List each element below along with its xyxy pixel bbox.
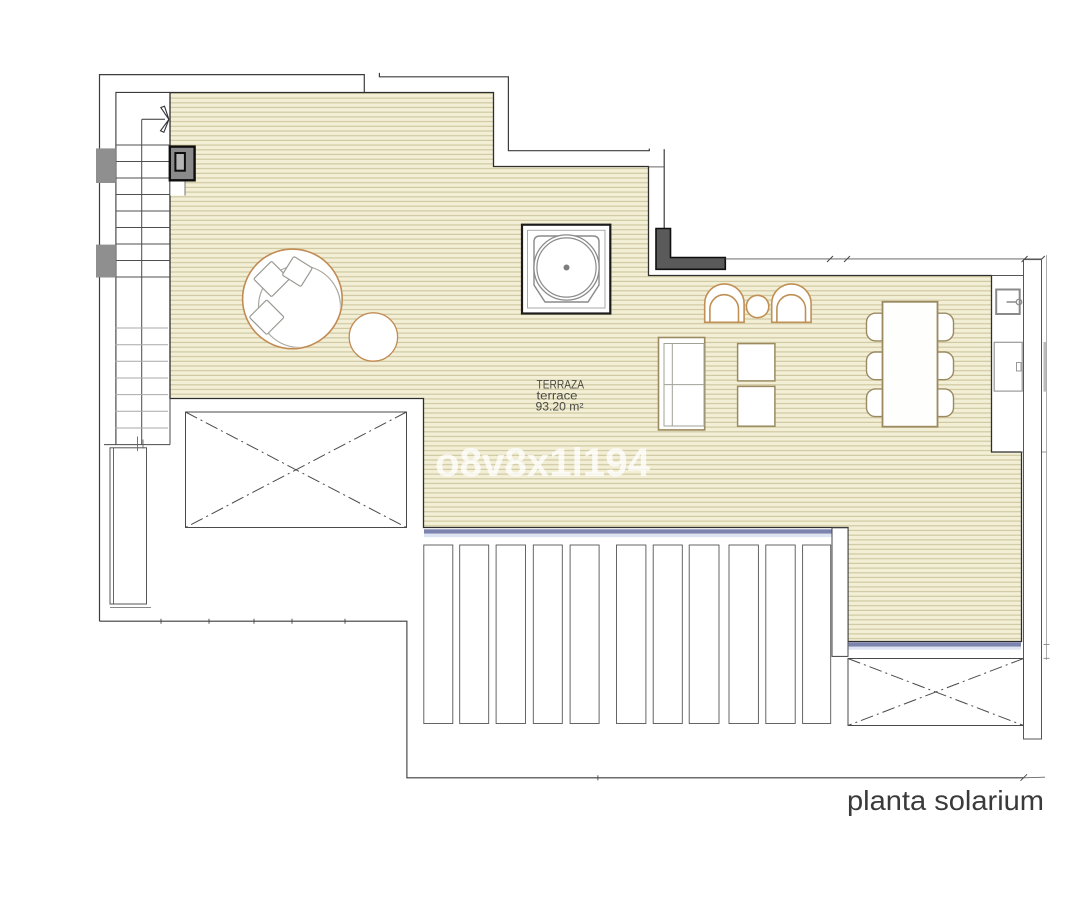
svg-text:planta solarium: planta solarium bbox=[847, 785, 1044, 816]
svg-text:o8v8x1l194: o8v8x1l194 bbox=[435, 441, 651, 485]
svg-text:93.20 m²: 93.20 m² bbox=[536, 402, 584, 414]
